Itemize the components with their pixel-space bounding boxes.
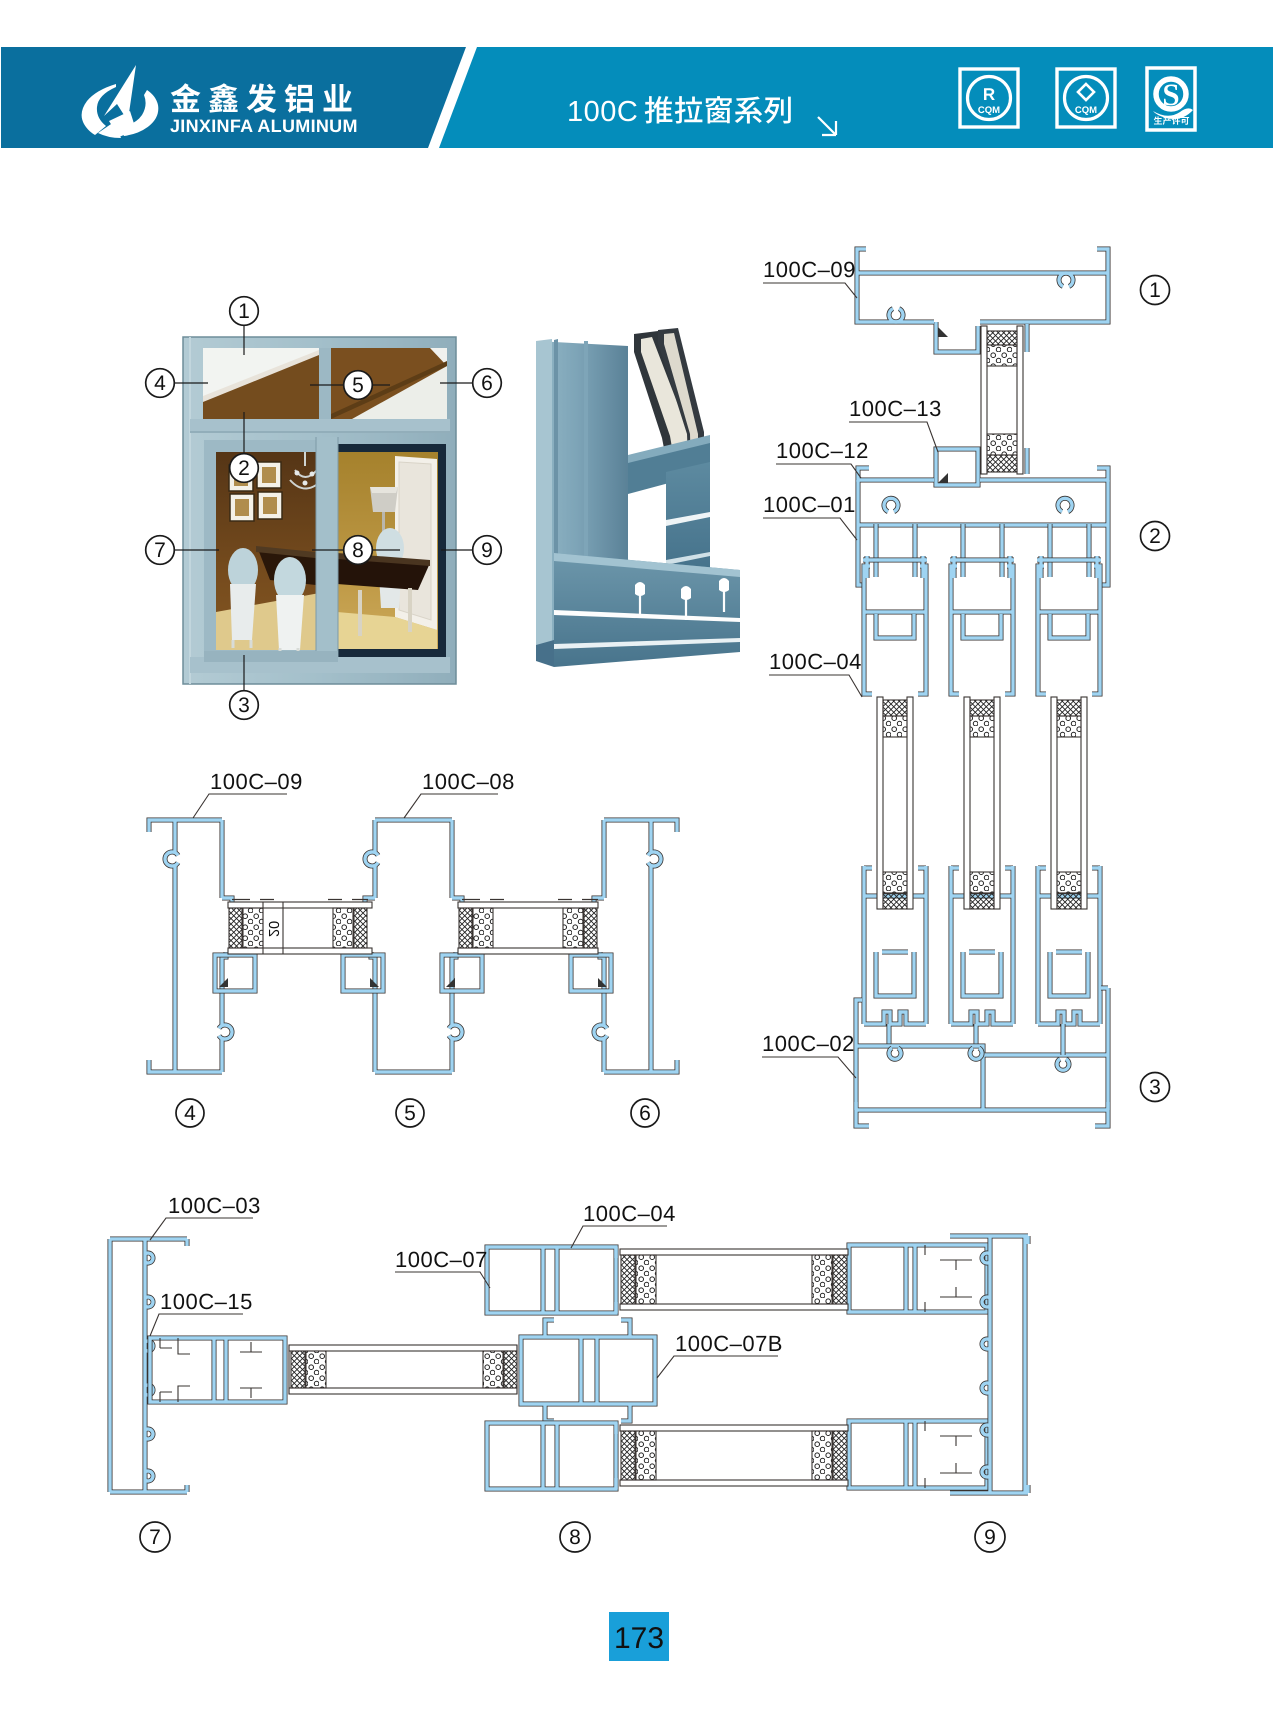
svg-text:2: 2 [238, 457, 250, 480]
svg-text:8: 8 [569, 1526, 581, 1549]
svg-text:5: 5 [404, 1102, 416, 1125]
svg-text:9: 9 [481, 539, 493, 562]
svg-text:3: 3 [238, 694, 250, 717]
svg-text:100C–09: 100C–09 [763, 257, 856, 282]
svg-text:100C: 100C [567, 96, 638, 128]
svg-text:8: 8 [352, 539, 364, 562]
svg-text:6: 6 [481, 372, 493, 395]
svg-text:4: 4 [154, 372, 166, 395]
svg-text:3: 3 [1149, 1076, 1161, 1099]
svg-text:JINXINFA ALUMINUM: JINXINFA ALUMINUM [170, 116, 358, 136]
svg-text:4: 4 [184, 1102, 196, 1125]
svg-text:5: 5 [352, 374, 364, 397]
svg-text:1: 1 [238, 300, 250, 323]
svg-text:173: 173 [614, 1622, 664, 1655]
svg-text:7: 7 [149, 1526, 161, 1549]
svg-text:CQM: CQM [1075, 105, 1097, 116]
svg-text:100C–07B: 100C–07B [675, 1331, 783, 1356]
svg-text:2: 2 [1149, 525, 1161, 548]
svg-text:100C–04: 100C–04 [583, 1201, 676, 1226]
svg-text:100C–02: 100C–02 [762, 1031, 855, 1056]
svg-text:100C–12: 100C–12 [776, 438, 869, 463]
svg-text:6: 6 [639, 1102, 651, 1125]
svg-text:9: 9 [984, 1526, 996, 1549]
svg-text:100C–03: 100C–03 [168, 1193, 261, 1218]
svg-text:100C–01: 100C–01 [763, 492, 856, 517]
svg-text:7: 7 [154, 539, 166, 562]
svg-text:CQM: CQM [978, 105, 1000, 116]
svg-text:100C–15: 100C–15 [160, 1289, 253, 1314]
svg-text:1: 1 [1149, 279, 1161, 302]
svg-text:100C–04: 100C–04 [769, 649, 862, 674]
svg-text:R: R [983, 85, 995, 104]
svg-text:100C–09: 100C–09 [210, 769, 303, 794]
svg-text:S: S [1162, 77, 1179, 112]
svg-text:100C–07: 100C–07 [395, 1247, 488, 1272]
svg-text:100C–13: 100C–13 [849, 396, 942, 421]
svg-text:100C–08: 100C–08 [422, 769, 515, 794]
